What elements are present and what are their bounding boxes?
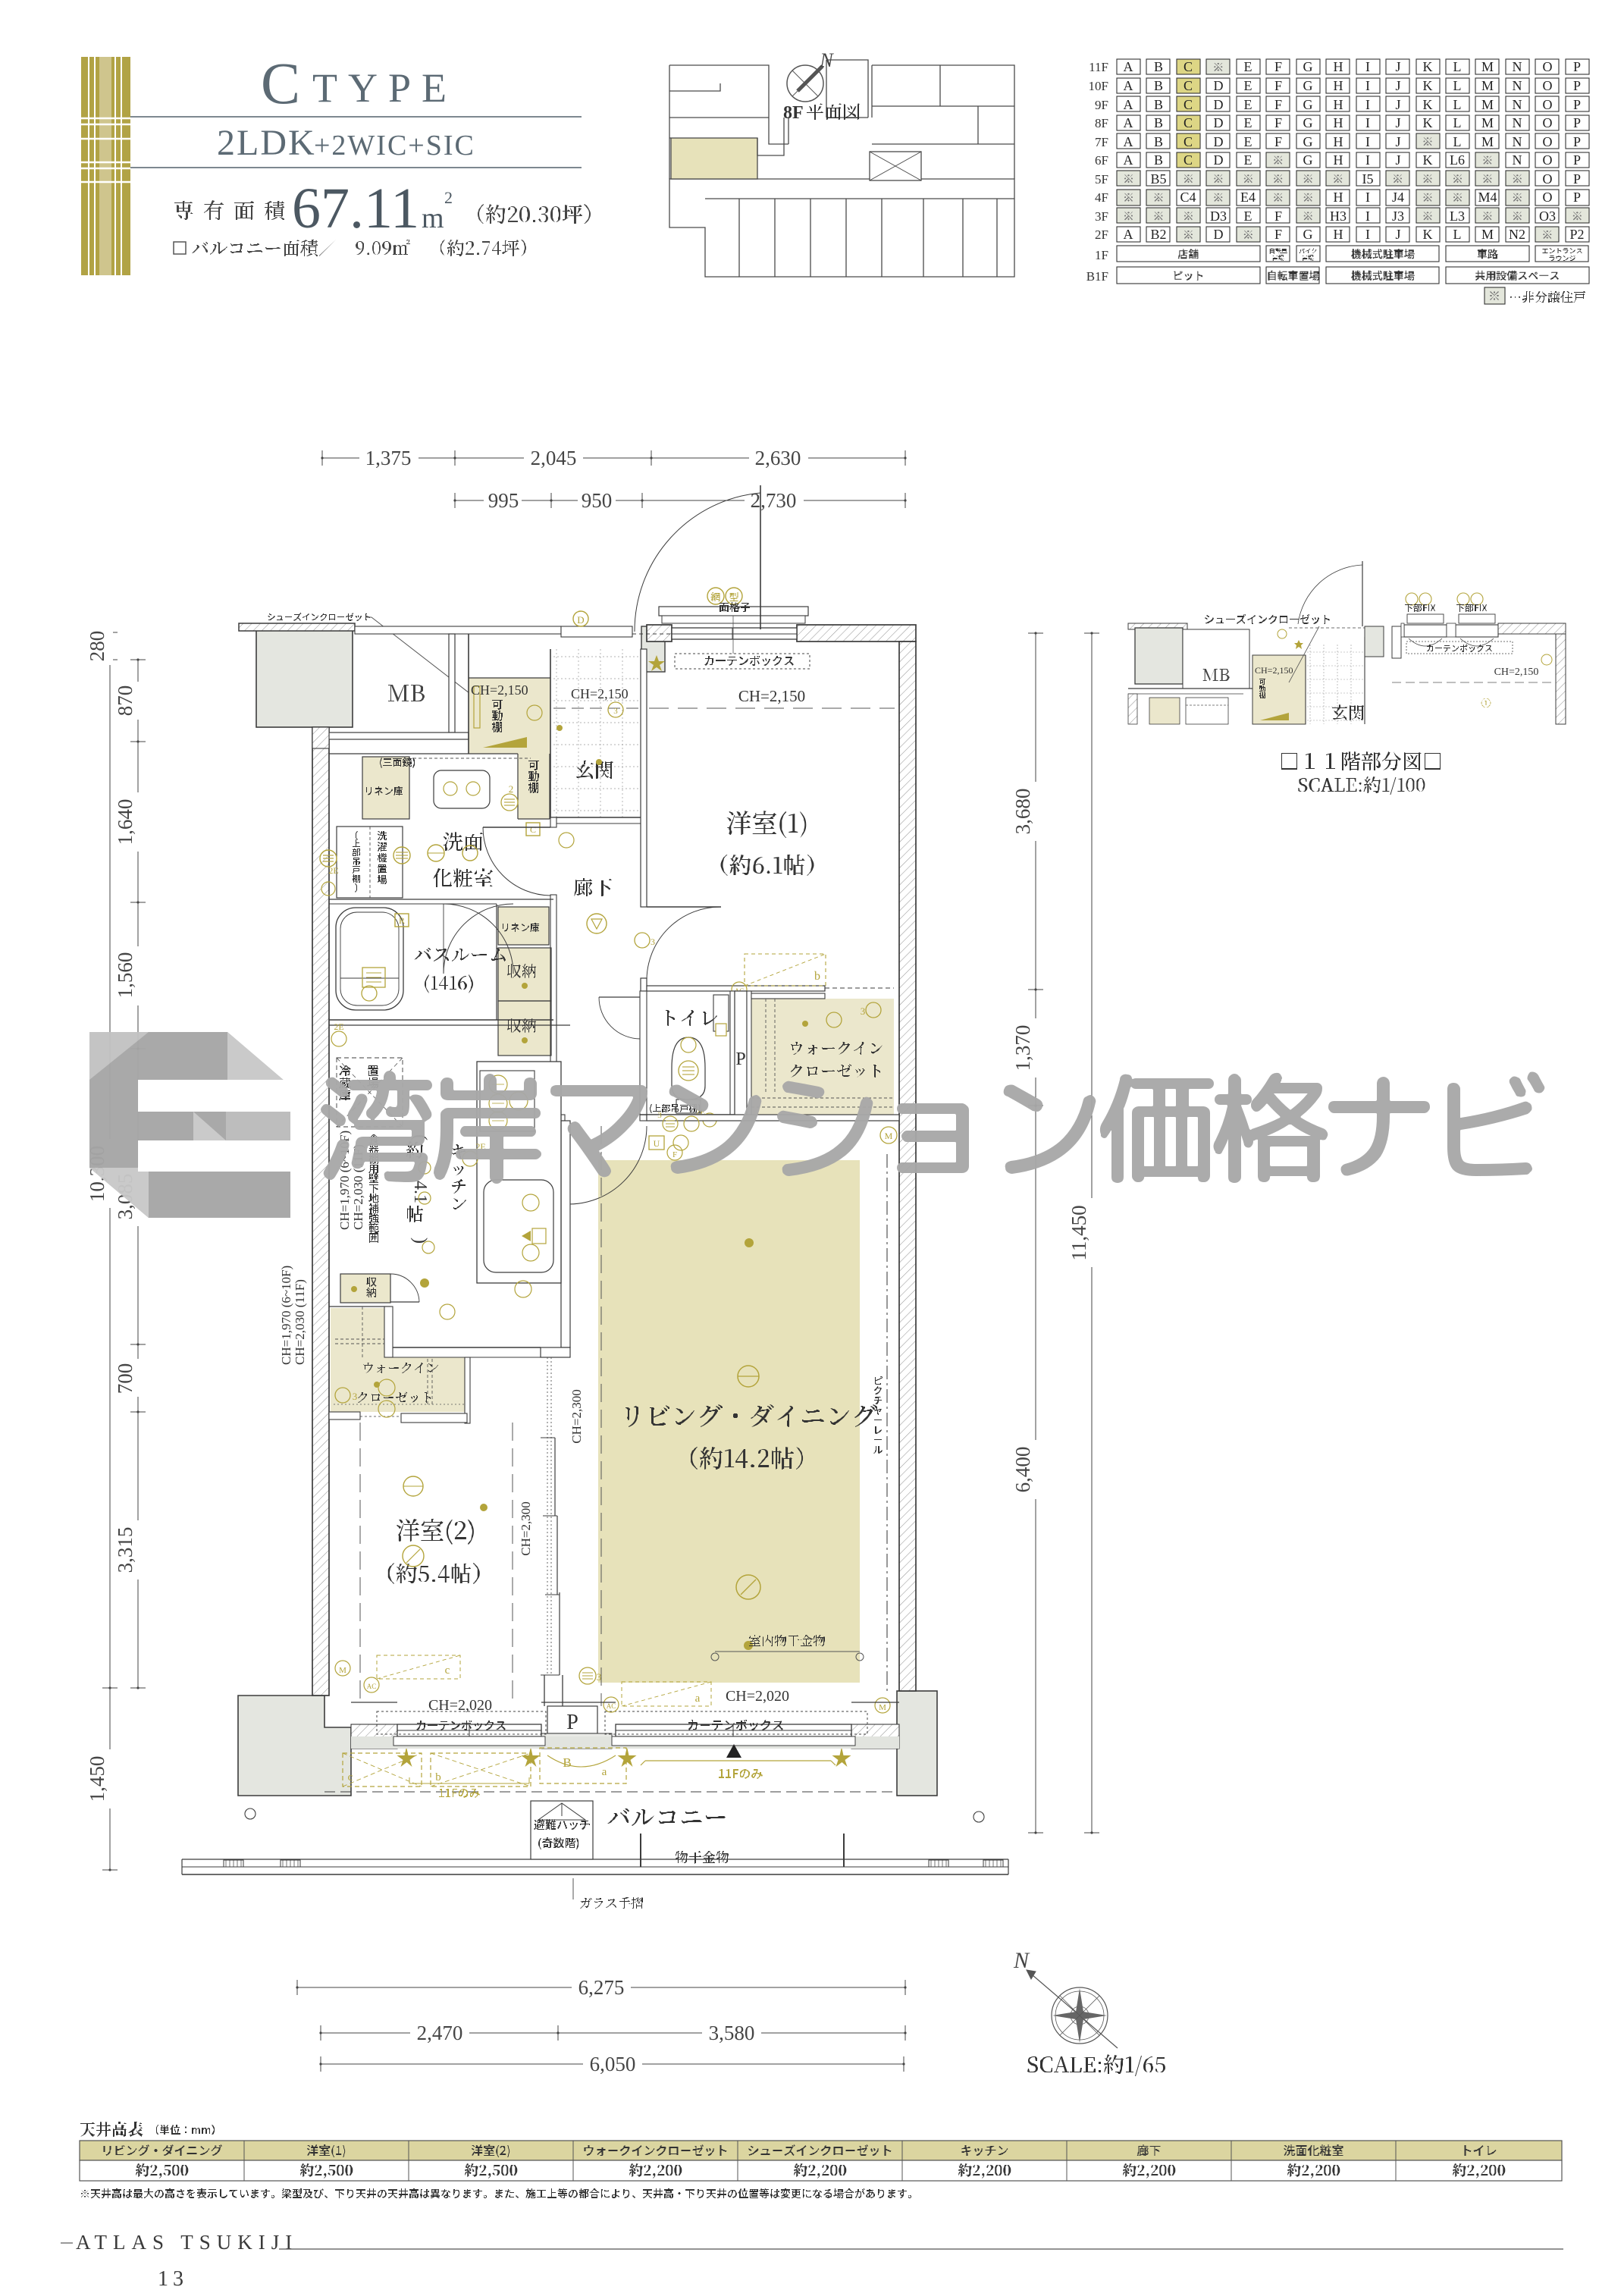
svg-text:E: E: [1244, 152, 1252, 168]
svg-text:1,375: 1,375: [365, 447, 412, 469]
svg-text:P2: P2: [1569, 227, 1584, 242]
svg-text:4F: 4F: [1095, 190, 1108, 205]
svg-text:M: M: [1481, 227, 1494, 242]
svg-text:N: N: [1513, 59, 1522, 74]
svg-text:G: G: [1303, 227, 1313, 242]
svg-text:J4: J4: [1392, 190, 1404, 205]
svg-text:CH=2,150: CH=2,150: [1255, 665, 1293, 676]
svg-text:ATLAS TSUKIJI: ATLAS TSUKIJI: [76, 2231, 298, 2254]
svg-text:A: A: [1124, 227, 1133, 242]
svg-text:C: C: [261, 50, 300, 116]
svg-text:J: J: [1395, 152, 1400, 168]
svg-text:C: C: [1184, 78, 1193, 93]
svg-text:J: J: [1395, 227, 1400, 242]
svg-text:O: O: [1543, 115, 1553, 130]
svg-text:CH=1,970 (6~10F): CH=1,970 (6~10F): [279, 1266, 293, 1365]
svg-text:B: B: [1154, 115, 1163, 130]
svg-text:C: C: [1184, 134, 1193, 149]
svg-text:1,640: 1,640: [114, 799, 136, 845]
svg-text:H: H: [1334, 59, 1343, 74]
svg-text:O: O: [1543, 78, 1553, 93]
svg-text:3F: 3F: [1095, 209, 1108, 224]
svg-text:N: N: [1513, 134, 1522, 149]
svg-text:1,560: 1,560: [114, 952, 136, 999]
svg-text:J3: J3: [1392, 209, 1404, 224]
svg-text:1F: 1F: [1095, 248, 1108, 262]
svg-text:11,450: 11,450: [1068, 1205, 1090, 1260]
svg-text:6,050: 6,050: [590, 2053, 636, 2075]
svg-text:1,370: 1,370: [1011, 1025, 1034, 1071]
svg-text:E: E: [1244, 59, 1252, 74]
svg-text:280: 280: [86, 631, 108, 662]
svg-text:K: K: [1423, 152, 1433, 168]
svg-text:CH=2,300: CH=2,300: [569, 1389, 584, 1443]
svg-text:9F: 9F: [1095, 98, 1108, 112]
svg-text:D: D: [1214, 115, 1224, 130]
svg-text:CH=2,150: CH=2,150: [1494, 667, 1539, 678]
svg-text:3: 3: [353, 1391, 358, 1402]
svg-text:6,400: 6,400: [1011, 1447, 1034, 1493]
svg-text:J: J: [1395, 78, 1400, 93]
svg-text:P: P: [1573, 78, 1581, 93]
svg-text:M: M: [1481, 59, 1494, 74]
svg-text:C: C: [1184, 152, 1193, 168]
svg-text:R: R: [399, 915, 405, 926]
svg-text:A: A: [1124, 97, 1133, 112]
svg-text:J: J: [1395, 115, 1400, 130]
svg-text:CH=2,150: CH=2,150: [571, 686, 629, 701]
svg-text:3: 3: [657, 1111, 662, 1120]
svg-text:D: D: [1214, 227, 1224, 242]
svg-text:G: G: [1303, 134, 1313, 149]
svg-text:2LDK: 2LDK: [217, 123, 316, 163]
svg-text:2,470: 2,470: [417, 2022, 463, 2044]
svg-text:L: L: [1453, 59, 1462, 74]
svg-text:L: L: [1453, 115, 1462, 130]
svg-text:P: P: [1573, 190, 1581, 205]
svg-text:M: M: [1481, 78, 1494, 93]
svg-text:P: P: [1573, 97, 1581, 112]
svg-text:H: H: [1334, 115, 1343, 130]
svg-text:I: I: [1365, 152, 1370, 168]
svg-text:2E: 2E: [334, 1021, 343, 1032]
svg-text:U: U: [654, 1138, 660, 1149]
svg-text:I: I: [1365, 227, 1370, 242]
svg-text:O: O: [1543, 171, 1553, 187]
svg-text:CH=2,300: CH=2,300: [519, 1501, 533, 1555]
svg-text:M: M: [1481, 115, 1494, 130]
svg-text:D3: D3: [1210, 209, 1227, 224]
svg-text:m: m: [422, 202, 444, 234]
svg-text:700: 700: [114, 1363, 136, 1394]
svg-text:M: M: [885, 1131, 893, 1141]
svg-text:O3: O3: [1539, 209, 1556, 224]
svg-text:J: J: [1395, 59, 1400, 74]
svg-text:B2: B2: [1150, 227, 1166, 242]
svg-text:F: F: [1274, 134, 1282, 149]
svg-text:AC: AC: [367, 1683, 377, 1690]
svg-text:O: O: [1543, 97, 1553, 112]
svg-text:H: H: [1334, 227, 1343, 242]
svg-text:2F: 2F: [1095, 227, 1108, 242]
svg-text:P: P: [735, 1049, 745, 1069]
svg-text:K: K: [1423, 78, 1433, 93]
svg-text:B: B: [1154, 59, 1163, 74]
svg-text:F: F: [1274, 97, 1282, 112]
svg-text:M: M: [1481, 97, 1494, 112]
svg-text:N: N: [1013, 1948, 1030, 1973]
svg-text:TYPE: TYPE: [312, 65, 457, 111]
svg-text:K: K: [1423, 115, 1433, 130]
svg-text:c: c: [348, 1771, 353, 1783]
svg-text:C: C: [1184, 59, 1193, 74]
svg-text:C: C: [1184, 115, 1193, 130]
svg-text:2: 2: [444, 188, 453, 207]
svg-text:8F: 8F: [1095, 116, 1108, 130]
svg-text:N: N: [1513, 78, 1522, 93]
svg-text:3: 3: [597, 1671, 602, 1683]
svg-text:5F: 5F: [1095, 172, 1108, 187]
svg-text:E4: E4: [1240, 190, 1256, 205]
svg-text:F: F: [1274, 227, 1282, 242]
svg-text:L6: L6: [1450, 152, 1465, 168]
svg-text:B: B: [563, 1755, 571, 1770]
svg-text:C: C: [1184, 97, 1193, 112]
svg-text:2,630: 2,630: [755, 447, 801, 469]
svg-text:E: E: [1244, 115, 1252, 130]
svg-text:E: E: [1244, 78, 1252, 93]
svg-text:3: 3: [613, 707, 618, 716]
svg-text:13: 13: [158, 2267, 188, 2290]
svg-text:P: P: [1573, 59, 1581, 74]
svg-text:M: M: [339, 1666, 346, 1675]
svg-text:K: K: [1423, 227, 1433, 242]
svg-text:3,680: 3,680: [1011, 789, 1034, 835]
svg-text:P: P: [1573, 171, 1581, 187]
svg-text:H: H: [1334, 97, 1343, 112]
svg-text:G: G: [1303, 59, 1313, 74]
svg-text:A: A: [1124, 59, 1133, 74]
svg-text:+2WIC+SIC: +2WIC+SIC: [314, 130, 475, 162]
svg-text:L: L: [1453, 97, 1462, 112]
svg-text:D: D: [577, 614, 584, 626]
svg-text:B: B: [1154, 78, 1163, 93]
svg-text:E: E: [1244, 134, 1252, 149]
svg-text:M: M: [879, 1703, 886, 1712]
svg-text:2,045: 2,045: [531, 447, 577, 469]
svg-text:a: a: [602, 1766, 607, 1778]
svg-text:F: F: [672, 1150, 677, 1159]
svg-text:I: I: [1365, 78, 1370, 93]
svg-text:N2: N2: [1509, 227, 1525, 242]
svg-text:CH=2,030 (11F): CH=2,030 (11F): [293, 1279, 307, 1365]
svg-text:A: A: [1124, 134, 1133, 149]
svg-text:P: P: [1573, 134, 1581, 149]
svg-text:67.11: 67.11: [292, 177, 419, 240]
svg-text:B: B: [1154, 134, 1163, 149]
svg-text:c: c: [445, 1664, 450, 1677]
svg-text:F: F: [1274, 78, 1282, 93]
svg-text:3: 3: [861, 1005, 866, 1017]
svg-text:950: 950: [582, 489, 613, 512]
svg-text:2E: 2E: [328, 865, 338, 876]
svg-text:b: b: [814, 970, 820, 983]
svg-text:P: P: [1573, 152, 1581, 168]
svg-text:D: D: [1214, 97, 1224, 112]
svg-text:N: N: [1513, 152, 1522, 168]
svg-text:L: L: [1453, 78, 1462, 93]
svg-text:): ): [410, 1238, 430, 1244]
svg-text:P: P: [566, 1711, 578, 1734]
svg-text:G: G: [1303, 78, 1313, 93]
svg-text:N: N: [1513, 97, 1522, 112]
svg-text:10F: 10F: [1089, 79, 1108, 93]
svg-text:I: I: [1365, 115, 1370, 130]
svg-text:7F: 7F: [1095, 135, 1108, 149]
svg-text:B5: B5: [1150, 171, 1166, 187]
svg-text:L3: L3: [1450, 209, 1465, 224]
svg-text:b: b: [435, 1771, 441, 1783]
svg-text:CH=2,150: CH=2,150: [738, 687, 805, 705]
svg-text:CH=2,020: CH=2,020: [726, 1688, 789, 1705]
svg-text:3,580: 3,580: [709, 2022, 755, 2044]
svg-text:H: H: [1334, 78, 1343, 93]
svg-text:I: I: [1365, 97, 1370, 112]
svg-text:H: H: [1334, 134, 1343, 149]
svg-text:G: G: [1303, 115, 1313, 130]
svg-text:P: P: [1573, 115, 1581, 130]
svg-text:F: F: [1274, 59, 1282, 74]
svg-text:N: N: [1513, 115, 1522, 130]
svg-text:B1F: B1F: [1086, 269, 1108, 284]
svg-text:B: B: [1154, 152, 1163, 168]
svg-text:O: O: [1543, 59, 1553, 74]
svg-text:G: G: [1303, 152, 1313, 168]
svg-text:K: K: [1423, 97, 1433, 112]
svg-text:K: K: [1423, 59, 1433, 74]
svg-text:D: D: [1214, 78, 1224, 93]
svg-text:J: J: [1395, 134, 1400, 149]
svg-text:H: H: [1334, 152, 1343, 168]
svg-text:H3: H3: [1330, 209, 1347, 224]
svg-text:A: A: [1124, 115, 1133, 130]
svg-text:870: 870: [114, 685, 136, 717]
svg-text:I: I: [1365, 134, 1370, 149]
svg-text:F: F: [1274, 209, 1282, 224]
svg-text:N: N: [819, 49, 834, 71]
svg-text:E: E: [1244, 209, 1252, 224]
svg-text:CH=2,150: CH=2,150: [471, 682, 528, 698]
svg-text:I: I: [1365, 59, 1370, 74]
svg-text:11F: 11F: [1089, 60, 1108, 74]
svg-text:J: J: [1395, 97, 1400, 112]
svg-text:L: L: [1453, 134, 1462, 149]
svg-text:A: A: [1124, 78, 1133, 93]
svg-text:3,315: 3,315: [114, 1527, 136, 1573]
svg-text:B: B: [1154, 97, 1163, 112]
svg-text:G: G: [1303, 97, 1313, 112]
svg-text:2: 2: [509, 783, 514, 795]
svg-text:F: F: [1274, 115, 1282, 130]
svg-text:I5: I5: [1362, 171, 1374, 187]
svg-text:C: C: [530, 824, 536, 835]
svg-text:3: 3: [651, 936, 655, 947]
svg-text:I: I: [1365, 209, 1370, 224]
svg-text:A: A: [1124, 152, 1133, 168]
svg-text:D: D: [1214, 152, 1224, 168]
svg-text:AC: AC: [607, 1702, 616, 1710]
svg-text:D: D: [1214, 134, 1224, 149]
svg-text:M: M: [1481, 134, 1494, 149]
svg-text:I: I: [1365, 190, 1370, 205]
svg-text:O: O: [1543, 152, 1553, 168]
svg-text:O: O: [1543, 134, 1553, 149]
svg-text:a: a: [695, 1692, 701, 1705]
svg-text:O: O: [1543, 190, 1553, 205]
svg-text:M4: M4: [1478, 190, 1497, 205]
svg-text:E: E: [1244, 97, 1252, 112]
svg-text:995: 995: [488, 489, 519, 512]
svg-text:L: L: [1453, 227, 1462, 242]
svg-text:C4: C4: [1180, 190, 1196, 205]
svg-text:6,275: 6,275: [578, 1976, 625, 1999]
svg-text:8F: 8F: [783, 103, 804, 123]
svg-text:2,730: 2,730: [751, 489, 797, 512]
svg-text:6F: 6F: [1095, 153, 1108, 168]
svg-text:H: H: [1334, 190, 1343, 205]
svg-text:1,450: 1,450: [86, 1756, 108, 1802]
